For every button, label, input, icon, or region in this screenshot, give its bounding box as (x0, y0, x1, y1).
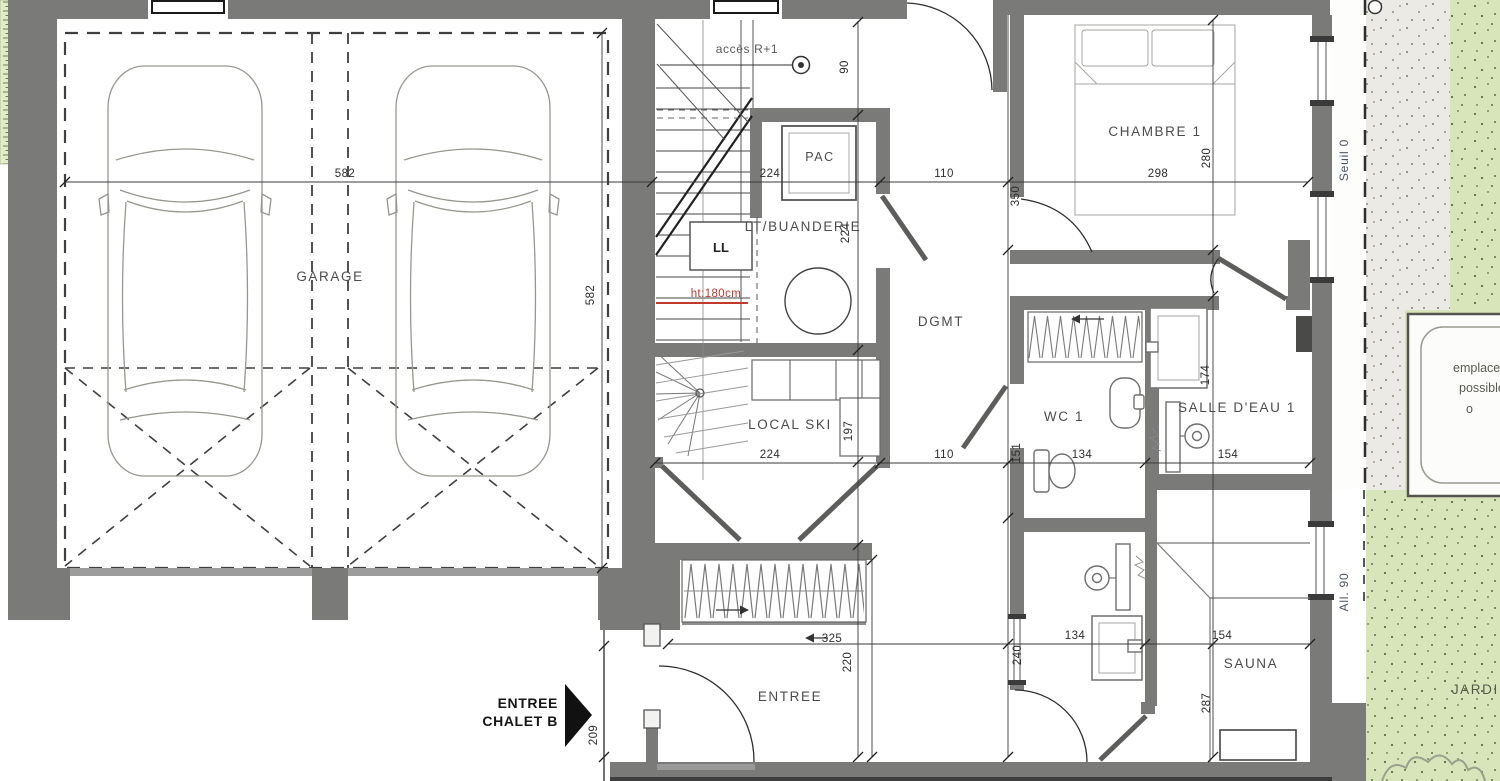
dim-chambre-depth: 280 (1201, 148, 1213, 168)
dim-wc-width: 134 (1072, 449, 1093, 461)
bath-shower (1085, 544, 1146, 610)
label-buanderie: LT/BUANDERIE (745, 219, 861, 234)
entrance-door-arc (659, 666, 754, 762)
dim-chambre-width: 298 (1148, 168, 1168, 180)
label-garage: GARAGE (296, 269, 363, 284)
ski-shelves (752, 360, 880, 456)
dim-sauna-width: 154 (1212, 630, 1233, 642)
dim-hall-height: 350 (1010, 186, 1022, 206)
dim-garage-width: 582 (335, 168, 355, 180)
dim-garage-depth: 582 (585, 285, 597, 305)
dim-entree-door: 209 (588, 725, 600, 745)
label-all90: All. 90 (1337, 573, 1351, 612)
garage-area (65, 33, 608, 568)
dim-wc-depth: 151 (1011, 443, 1023, 463)
chambre-door-arc (1021, 199, 1092, 252)
site-marker-circle (1369, 1, 1382, 14)
bath-vanity (1092, 616, 1142, 680)
stair-window (714, 1, 778, 13)
dim-hall-top: 110 (934, 168, 954, 180)
garage-window (152, 1, 224, 13)
dim-entree-width: 325 (822, 633, 842, 645)
emplacement-text-line3: o (1466, 402, 1473, 416)
dim-stair-top: 90 (839, 60, 851, 74)
label-sauna: SAUNA (1224, 656, 1279, 671)
entrance-door-frame-bottom (644, 710, 660, 728)
sauna-window (1308, 521, 1334, 600)
walls (8, 0, 1366, 781)
label-ll: LL (713, 240, 729, 255)
label-ht180: ht:180cm (691, 288, 742, 300)
dim-localski-depth: 197 (843, 421, 855, 441)
fixtures (682, 25, 1310, 762)
sauna-heater (1220, 730, 1296, 760)
chambre-window-2 (1310, 191, 1334, 283)
wc-closet (1028, 312, 1142, 362)
dim-bath-depth: 240 (1012, 645, 1024, 665)
label-pac: PAC (805, 150, 835, 164)
sde1-vanity (1146, 308, 1207, 388)
sauna-benches (1157, 543, 1310, 762)
sauna-door-leaf (1100, 716, 1146, 760)
dim-sauna-depth: 287 (1201, 693, 1213, 713)
label-jardin: JARDIN (1452, 682, 1500, 697)
buanderie-door-leaf (882, 196, 926, 260)
ski-door-leaf-right (799, 466, 877, 540)
label-wc1: WC 1 (1044, 409, 1084, 424)
emplacement-text-line1: emplacement (1453, 361, 1500, 375)
floor-plan-page: 582 582 224 110 298 90 224 280 350 197 2… (0, 0, 1500, 781)
entrance-callout-line1: ENTREE (498, 695, 558, 711)
dim-sde-depth: 174 (1200, 365, 1212, 386)
label-chambre1: CHAMBRE 1 (1108, 124, 1201, 139)
dim-stair-width: 224 (760, 168, 781, 180)
label-dgmt: DGMT (918, 314, 964, 329)
label-sde1: SALLE D'EAU 1 (1178, 400, 1296, 415)
entrance-callout: ENTREE CHALET B (482, 684, 592, 747)
entree-closet (682, 560, 866, 622)
label-local-ski: LOCAL SKI (748, 417, 832, 432)
wall-niche (1296, 316, 1312, 352)
toilet (1034, 450, 1075, 492)
ski-door-leaf-left (662, 466, 740, 540)
dim-entree-depth: 220 (842, 652, 854, 672)
wc-basin (1110, 378, 1144, 428)
dim-hall-bottom: 110 (934, 449, 954, 461)
bed (1075, 25, 1235, 215)
chambre-window-1 (1310, 36, 1334, 106)
dim-sde-width: 154 (1218, 449, 1239, 461)
label-acces-r1: accès R+1 (716, 42, 778, 56)
terrace-door-arc (907, 3, 992, 90)
dim-localski-width: 224 (760, 449, 781, 461)
emplacement-text-line2: possible (1459, 381, 1500, 395)
water-heater (785, 268, 851, 334)
entrance-door-frame-top (644, 624, 660, 646)
label-seuil0: Seuil 0 (1337, 139, 1351, 181)
entrance-callout-line2: CHALET B (482, 713, 558, 729)
sde1-door-leaf (1218, 258, 1286, 299)
emplacement-box: emplacement possible o (1408, 314, 1500, 496)
label-entree: ENTREE (758, 689, 822, 704)
dim-bath-width: 134 (1065, 630, 1086, 642)
wc-door-leaf (963, 386, 1006, 448)
bath-door-arc (1015, 690, 1087, 762)
floor-plan-svg: 582 582 224 110 298 90 224 280 350 197 2… (0, 0, 1500, 781)
